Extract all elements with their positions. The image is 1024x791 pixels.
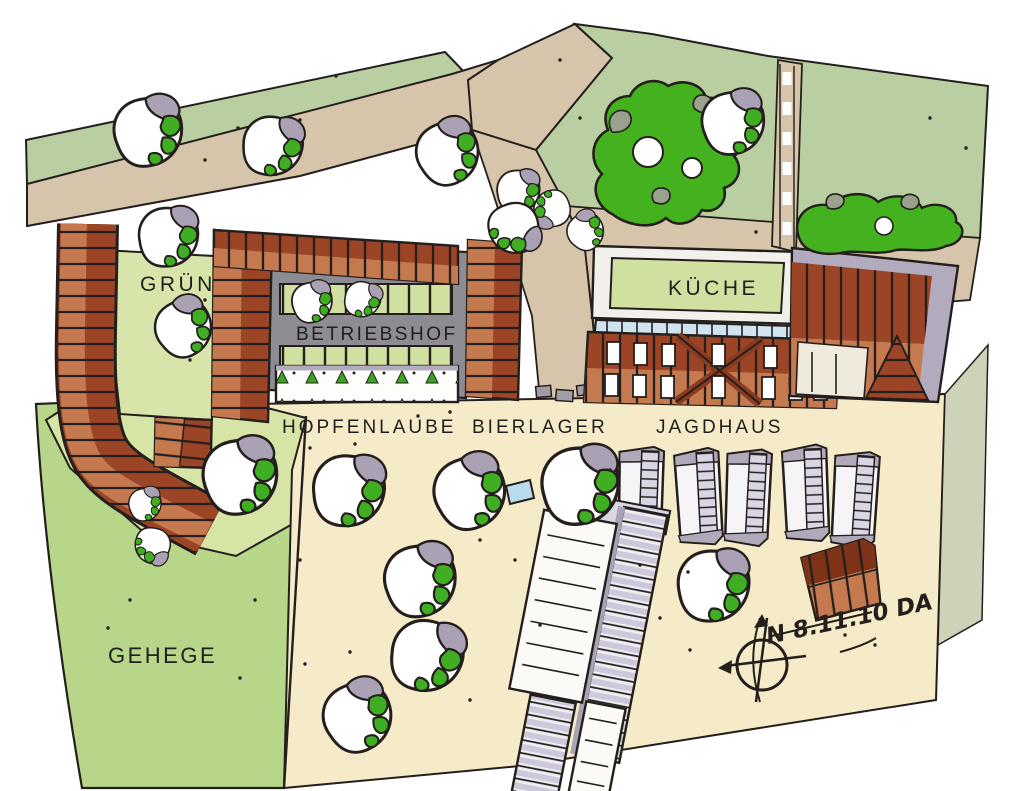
label-gruen: GRÜN xyxy=(140,273,216,296)
cottage xyxy=(723,448,772,546)
building-right xyxy=(788,248,958,402)
cottage xyxy=(829,450,880,549)
hopfenlaube-strip xyxy=(276,366,458,402)
site-plan-drawing: GRÜN BETRIEBSHOF KÜCHE HOPFENLAUBE BIERL… xyxy=(0,0,1024,791)
label-betriebshof: BETRIEBSHOF xyxy=(296,324,458,345)
building-betriebshof-east xyxy=(466,240,522,400)
strip-right xyxy=(938,345,988,645)
label-gehege: GEHEGE xyxy=(108,643,217,668)
tree xyxy=(114,94,182,167)
cottage xyxy=(674,448,723,546)
label-hopfenlaube: HOPFENLAUBE xyxy=(282,417,456,438)
label-jagdhaus: JAGDHAUS xyxy=(656,417,783,438)
cottage xyxy=(782,444,829,541)
label-kueche: KÜCHE xyxy=(668,277,759,300)
site-plan-sketch: GRÜN BETRIEBSHOF KÜCHE HOPFENLAUBE BIERL… xyxy=(0,0,1024,791)
label-bierlager: BIERLAGER xyxy=(472,417,608,438)
